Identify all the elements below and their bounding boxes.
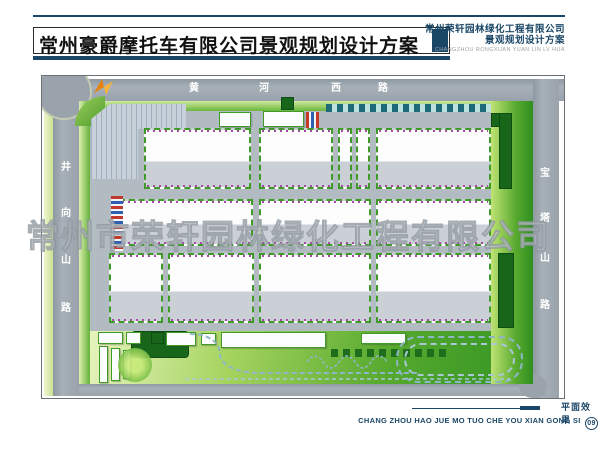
road-label-char: 宝: [540, 169, 550, 179]
title-underline-bar: [33, 56, 450, 60]
plan-sheet: 常州豪爵摩托车有限公司景观规划设计方案 常州荣轩园林绿化工程有限公司 景观规划设…: [0, 0, 600, 463]
workshop-building: [376, 128, 491, 189]
workshop-building: [168, 253, 254, 323]
header-top-rule: [33, 15, 565, 17]
company-pinyin: CHANGZHOU RONGXUAN YUAN LIN LV HUA: [345, 47, 565, 53]
parked-cars-north: [306, 112, 319, 128]
workshop-building: [259, 253, 371, 323]
caption-rule-thick: [520, 406, 540, 410]
road-label-char: 路: [540, 301, 550, 311]
gatehouse-building: [219, 112, 251, 127]
test-track-curves: [90, 331, 519, 384]
road-label-char: 路: [61, 304, 71, 314]
east-tree-belt-south: [498, 253, 514, 328]
tree-cluster: [281, 97, 294, 110]
north-compass-icon: [92, 78, 114, 96]
narrow-building: [338, 128, 352, 189]
road-huanghe-west: [42, 79, 564, 101]
workshop-building: [376, 253, 491, 323]
road-label-char: 黄: [189, 84, 199, 94]
workshop-building: [144, 128, 251, 189]
narrow-building: [356, 128, 370, 189]
watermark-text: 常州市荣轩园林绿化工程有限公司: [26, 210, 574, 258]
company-block: 常州荣轩园林绿化工程有限公司 景观规划设计方案 CHANGZHOU RONGXU…: [345, 24, 565, 53]
north-parking-row: [326, 104, 491, 112]
company-subtitle: 景观规划设计方案: [345, 35, 565, 46]
footer-pinyin-row: CHANG ZHOU HAO JUE MO TUO CHE YOU XIAN G…: [198, 416, 598, 430]
road-label-char: 河: [259, 84, 269, 94]
page-number-badge: 09: [585, 417, 598, 430]
company-name: 常州荣轩园林绿化工程有限公司: [345, 24, 565, 35]
office-building: [263, 111, 304, 127]
workshop-building: [109, 253, 163, 323]
east-tree-belt-north: [499, 113, 512, 189]
workshop-building: [259, 128, 333, 189]
road-label-char: 路: [378, 84, 388, 94]
road-label-char: 西: [331, 84, 341, 94]
road-label-char: 井: [61, 163, 71, 173]
road-south-internal: [79, 384, 546, 396]
footer-pinyin: CHANG ZHOU HAO JUE MO TUO CHE YOU XIAN G…: [358, 416, 580, 425]
